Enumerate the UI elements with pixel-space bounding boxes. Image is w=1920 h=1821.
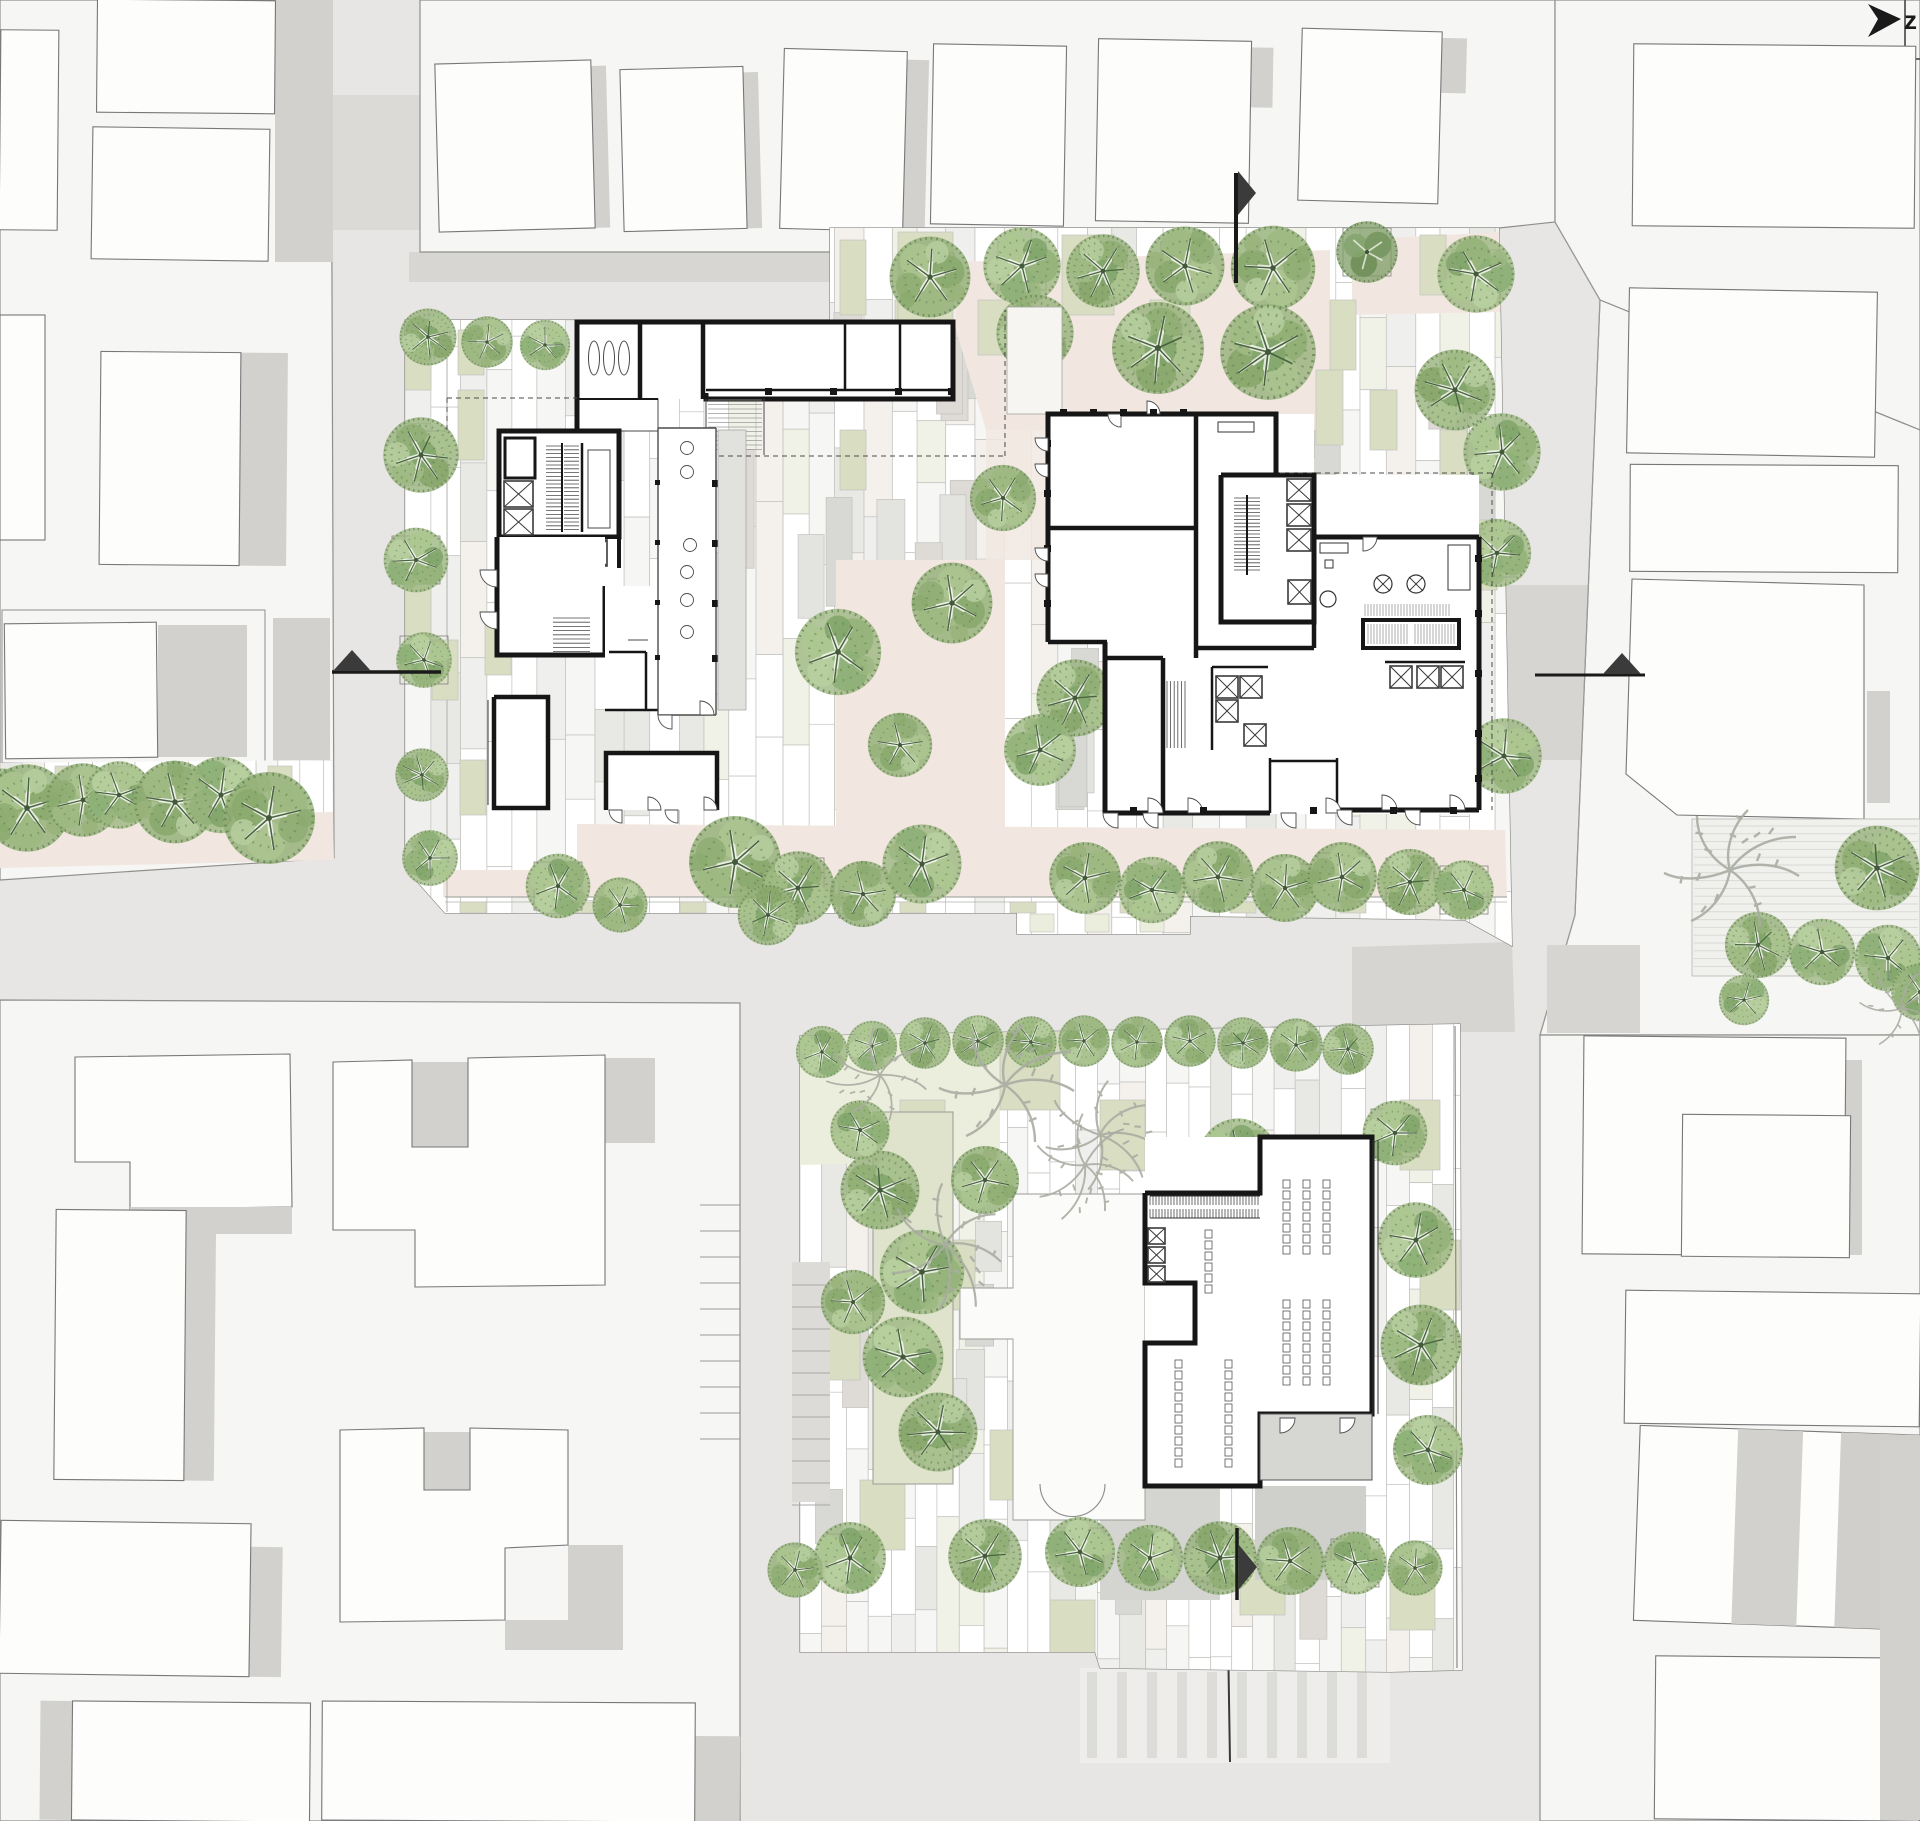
svg-text:z: z [1904, 5, 1917, 35]
